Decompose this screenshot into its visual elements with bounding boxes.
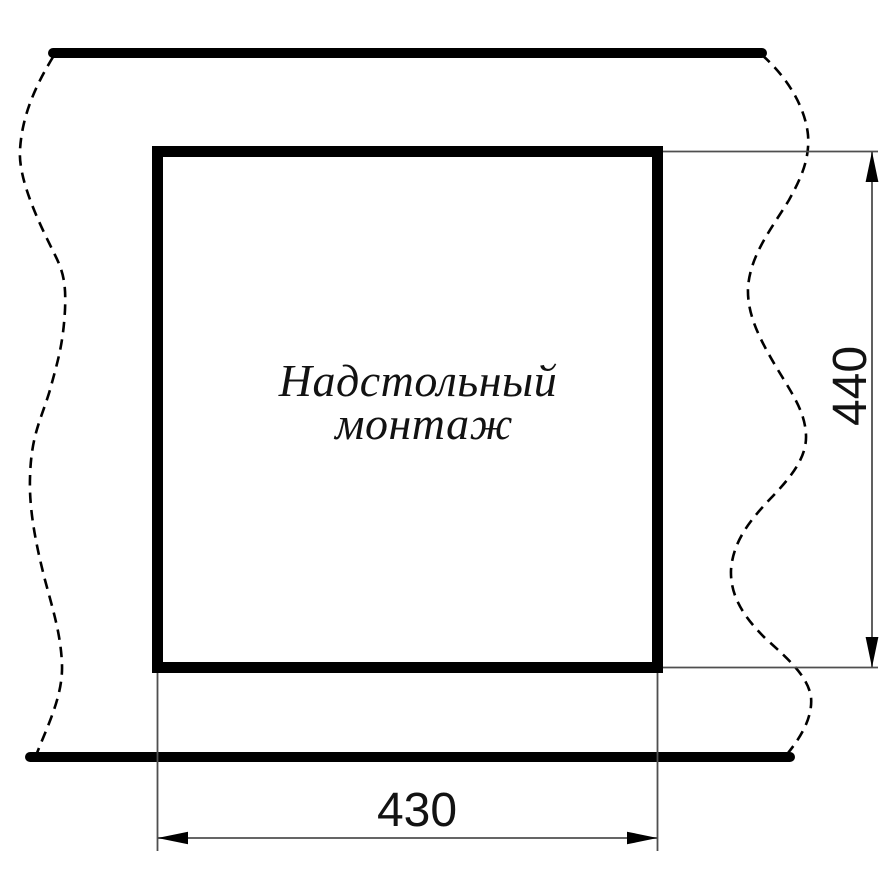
arrowhead-height-top-icon bbox=[866, 152, 879, 183]
height-dimension-label: 440 bbox=[824, 346, 877, 426]
break-line-right bbox=[731, 55, 811, 753]
width-dimension-label: 430 bbox=[377, 784, 457, 837]
arrowhead-width-right-icon bbox=[627, 832, 658, 845]
break-line-left bbox=[20, 57, 65, 753]
mount-type-label-line2: монтаж bbox=[333, 398, 513, 449]
arrowhead-height-bottom-icon bbox=[866, 637, 879, 668]
installation-diagram: Надстольный монтаж 430 440 bbox=[0, 0, 896, 896]
arrowhead-width-left-icon bbox=[158, 832, 189, 845]
installation-diagram-canvas: Надстольный монтаж 430 440 bbox=[0, 0, 896, 896]
